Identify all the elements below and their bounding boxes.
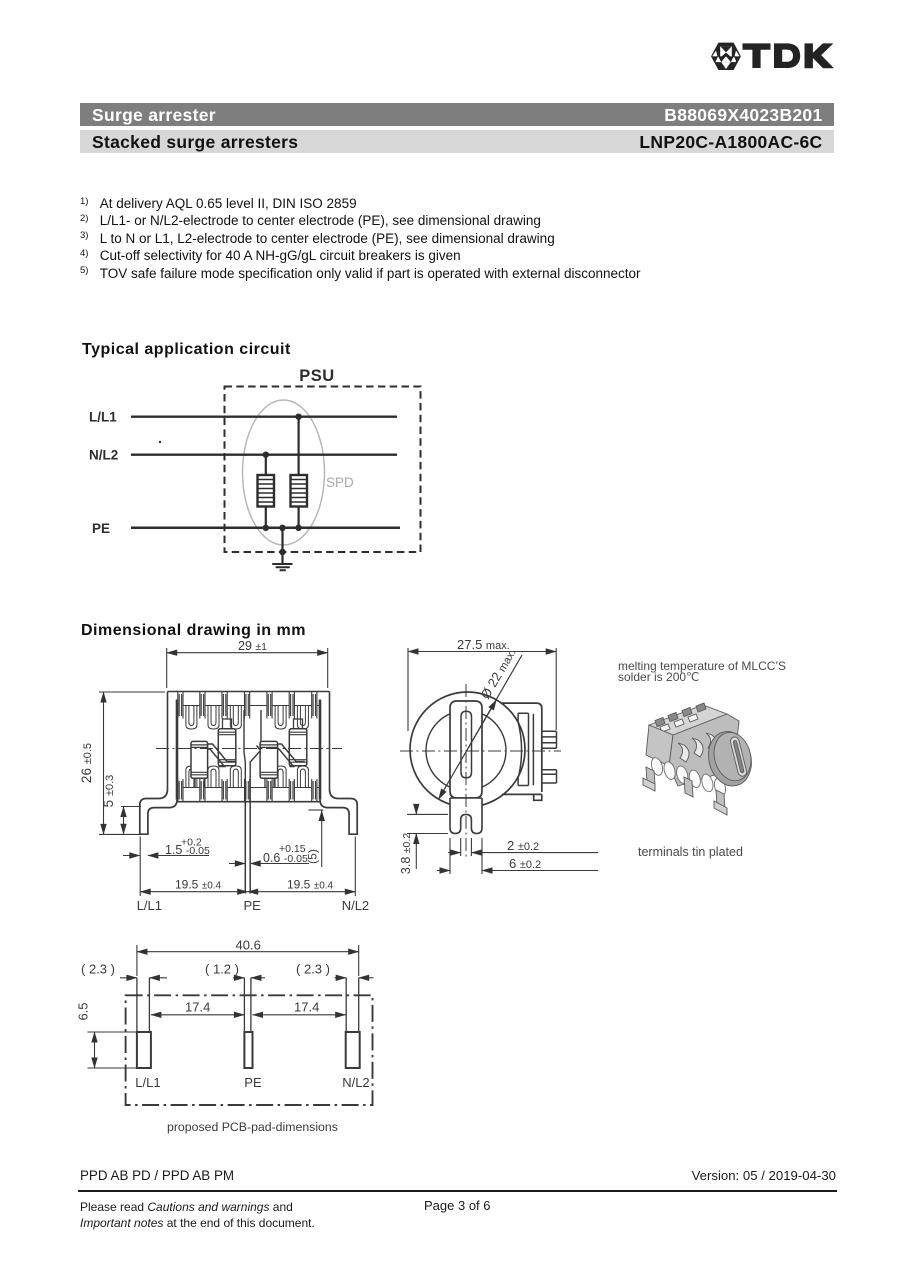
svg-text:N/L2: N/L2 [342, 898, 369, 913]
svg-text:17.4: 17.4 [294, 1000, 319, 1015]
svg-text:2 ±0.2: 2 ±0.2 [507, 838, 539, 853]
svg-text:( 2.3 ): ( 2.3 ) [296, 962, 330, 977]
svg-text:6 ±0.2: 6 ±0.2 [509, 856, 541, 871]
svg-text:L/L1: L/L1 [137, 898, 162, 913]
svg-text:40.6: 40.6 [236, 938, 261, 953]
svg-text:5 ±0.3: 5 ±0.3 [101, 775, 116, 808]
svg-text:( 1.2 ): ( 1.2 ) [205, 962, 239, 977]
svg-text:PE: PE [244, 898, 262, 913]
svg-text:1.5 -0.05: 1.5 -0.05 [165, 843, 210, 857]
svg-text:19.5 ±0.4: 19.5 ±0.4 [175, 878, 222, 892]
svg-text:PE: PE [244, 1075, 262, 1090]
svg-text:(5): (5) [306, 849, 320, 864]
svg-text:0.6 -0.05: 0.6 -0.05 [263, 851, 308, 865]
svg-text:terminals tin plated: terminals tin plated [638, 845, 743, 859]
svg-text:3.8 ±0.2: 3.8 ±0.2 [399, 833, 413, 874]
svg-text:6.5: 6.5 [76, 1002, 91, 1020]
svg-text:29 ±1: 29 ±1 [238, 639, 267, 653]
svg-text:( 2.3 ): ( 2.3 ) [81, 962, 115, 977]
svg-text:27.5 max.: 27.5 max. [457, 637, 510, 652]
svg-text:L/L1: L/L1 [135, 1075, 160, 1090]
svg-text:proposed PCB-pad-dimensions: proposed PCB-pad-dimensions [167, 1120, 338, 1134]
svg-text:Ø 22 max.: Ø 22 max. [478, 646, 519, 702]
svg-text:N/L2: N/L2 [342, 1075, 369, 1090]
svg-text:solder is 200℃: solder is 200℃ [618, 670, 700, 684]
svg-text:19.5 ±0.4: 19.5 ±0.4 [287, 878, 334, 892]
svg-text:17.4: 17.4 [185, 1000, 210, 1015]
svg-text:26 ±0.5: 26 ±0.5 [79, 743, 94, 783]
